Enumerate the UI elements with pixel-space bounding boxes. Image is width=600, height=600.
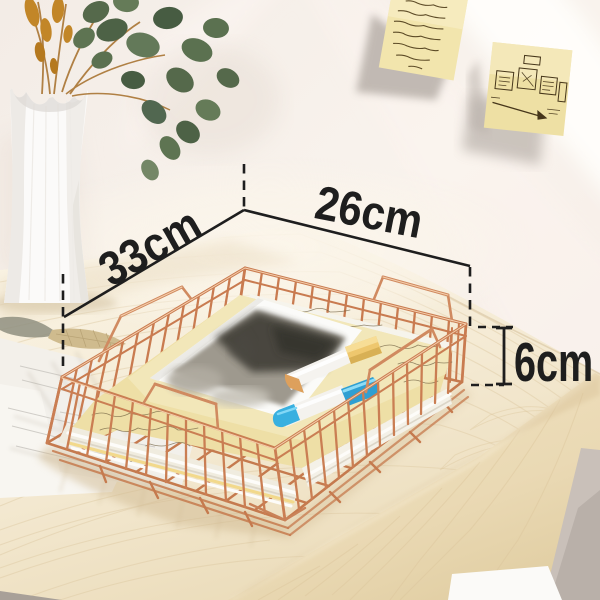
svg-text:6cm: 6cm [514, 333, 593, 394]
